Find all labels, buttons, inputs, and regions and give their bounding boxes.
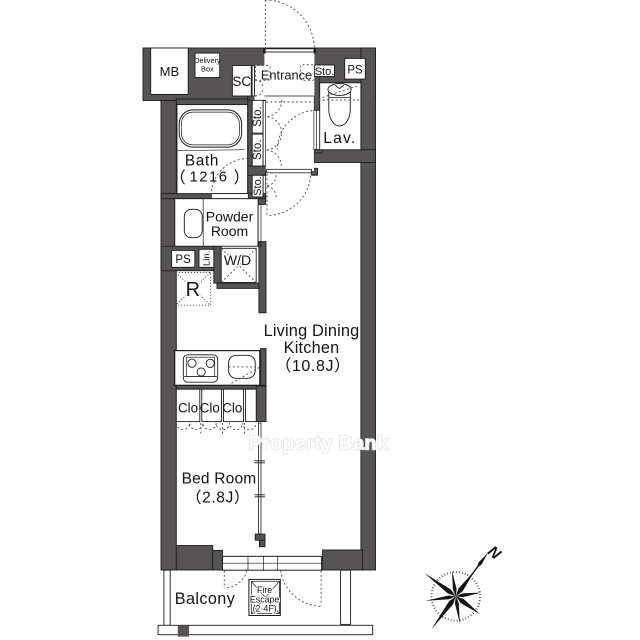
svg-text:Kitchen: Kitchen xyxy=(284,339,340,357)
svg-text:Entrance: Entrance xyxy=(261,68,312,83)
svg-text:1216: 1216 xyxy=(190,170,229,186)
svg-text:PS: PS xyxy=(347,65,363,77)
svg-text:SC: SC xyxy=(232,74,251,89)
svg-text:Room: Room xyxy=(211,223,248,239)
svg-text:Balcony: Balcony xyxy=(175,590,236,608)
svg-text:Box: Box xyxy=(201,65,214,74)
svg-text:Sto.: Sto. xyxy=(252,140,264,160)
svg-text:Property Bank: Property Bank xyxy=(249,433,389,455)
svg-text:Sto.: Sto. xyxy=(252,106,264,126)
svg-text:MB: MB xyxy=(160,64,180,79)
svg-text:（2.8J）: （2.8J） xyxy=(186,490,250,507)
svg-text:Sto.: Sto. xyxy=(315,66,335,78)
svg-text:Lav.: Lav. xyxy=(323,130,356,147)
svg-text:Clo: Clo xyxy=(178,401,198,416)
svg-text:R: R xyxy=(186,279,200,301)
svg-text:（10.8J）: （10.8J） xyxy=(275,357,350,375)
svg-text:W/D: W/D xyxy=(224,252,251,268)
svg-text:Bed Room: Bed Room xyxy=(182,471,257,488)
svg-text:Lin.: Lin. xyxy=(202,251,213,266)
svg-text:Living Dining: Living Dining xyxy=(264,322,360,340)
svg-text:PS: PS xyxy=(175,254,191,266)
svg-text:Fire: Fire xyxy=(257,585,272,595)
svg-text:（: （ xyxy=(170,169,186,187)
svg-text:Clo: Clo xyxy=(200,401,220,416)
svg-text:Sto.: Sto. xyxy=(252,176,264,196)
svg-text:）: ） xyxy=(233,169,249,187)
svg-text:Bath: Bath xyxy=(185,153,219,170)
svg-text:(2·4F): (2·4F) xyxy=(253,604,277,614)
svg-text:Clo: Clo xyxy=(222,401,242,416)
